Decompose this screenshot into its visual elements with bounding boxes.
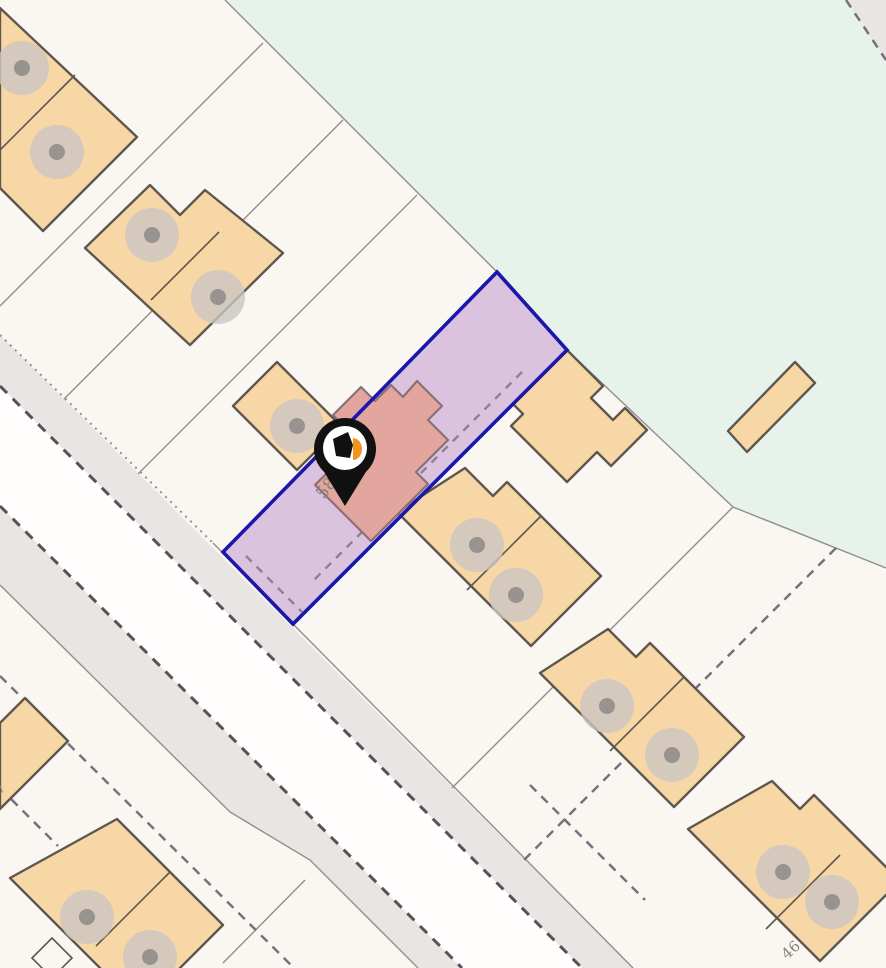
tree-marker <box>125 208 179 262</box>
tree-marker <box>645 728 699 782</box>
tree-marker <box>191 270 245 324</box>
map-canvas: 58 46 7 <box>0 0 886 968</box>
tree-marker <box>580 679 634 733</box>
tree-marker <box>30 125 84 179</box>
tree-marker <box>489 568 543 622</box>
tree-marker <box>756 845 810 899</box>
tree-marker <box>805 875 859 929</box>
tree-marker <box>450 518 504 572</box>
property-location-map: 58 46 7 <box>0 0 886 968</box>
tree-marker <box>60 890 114 944</box>
